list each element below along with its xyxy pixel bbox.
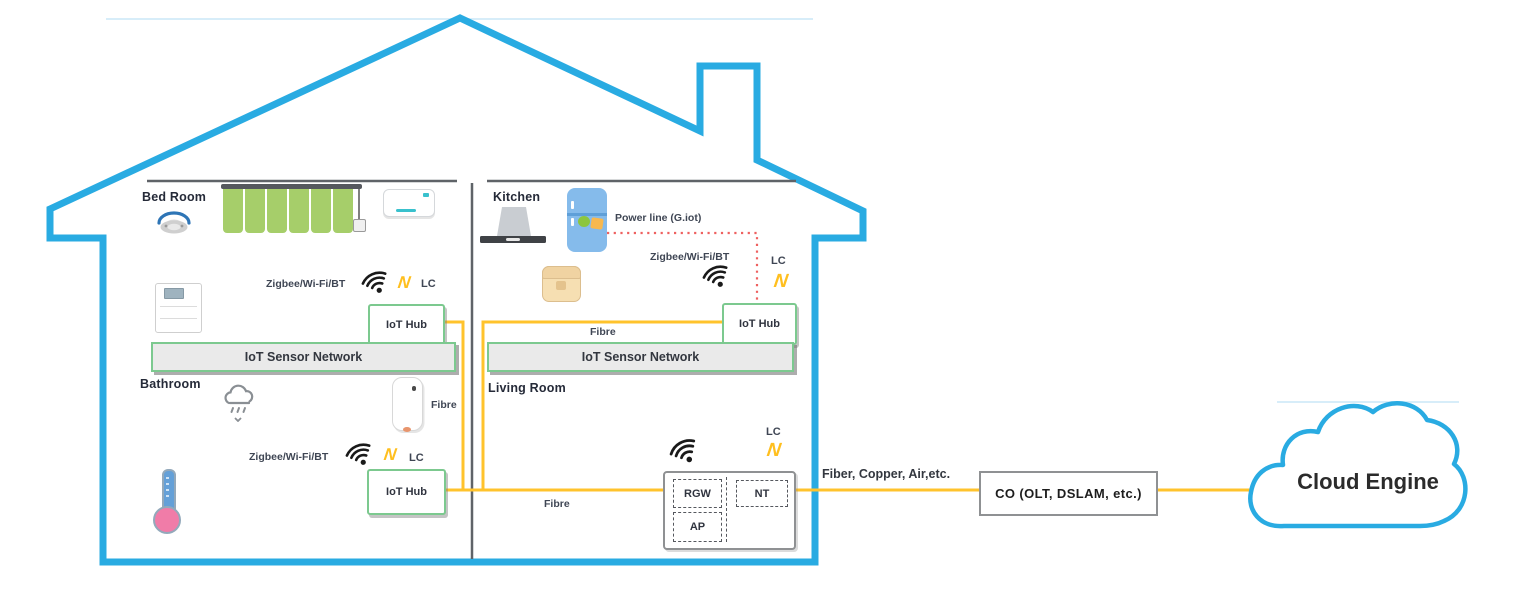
rice-cooker-icon <box>542 266 581 302</box>
bathroom-label: Bathroom <box>140 377 201 391</box>
air-purifier-icon <box>155 283 202 333</box>
central-office-box: CO (OLT, DSLAM, etc.) <box>979 471 1158 516</box>
bedroom-label: Bed Room <box>142 190 206 204</box>
bedroom-protocols-label: Zigbee/Wi-Fi/BT <box>266 278 345 290</box>
fridge-icon <box>567 188 607 252</box>
lightning-icon: N <box>773 272 789 291</box>
powerline-link <box>607 233 757 303</box>
kitchen-sensor-network-bar: IoT Sensor Network <box>487 342 794 372</box>
bathroom-iot-hub: IoT Hub <box>367 469 446 515</box>
lightning-icon: N <box>397 274 412 291</box>
bathroom-fibre-label: Fibre <box>431 399 457 411</box>
nt-module: NT <box>736 480 788 507</box>
kitchen-lc-label: LC <box>771 255 786 267</box>
smoke-detector-icon <box>155 210 193 243</box>
nt-label: NT <box>755 488 770 500</box>
cloud-engine-label: Cloud Engine <box>1288 469 1448 495</box>
living-room-fibre-label: Fibre <box>544 498 570 510</box>
curtain-icon <box>221 184 367 240</box>
powerline-label: Power line (G.iot) <box>615 212 701 224</box>
kitchen-iot-hub-label: IoT Hub <box>739 318 780 330</box>
bathroom-lc-label: LC <box>409 452 424 464</box>
bedroom-sensor-network-bar: IoT Sensor Network <box>151 342 456 372</box>
thermometer-icon <box>152 469 182 531</box>
bedroom-lc-label: LC <box>421 278 436 290</box>
fridge-magnet-note <box>590 217 603 230</box>
ap-label: AP <box>690 521 705 533</box>
rgw-module: RGW <box>673 479 722 508</box>
air-conditioner-icon <box>383 189 435 217</box>
living-room-label: Living Room <box>488 381 566 395</box>
water-heater-icon <box>392 377 423 431</box>
curtain-cord-handle <box>353 219 366 232</box>
bedroom-iot-hub: IoT Hub <box>368 304 445 345</box>
rgw-label: RGW <box>684 488 711 500</box>
living-room-lc-label: LC <box>766 426 781 438</box>
residential-gateway-box: RGW NT AP <box>663 471 796 550</box>
ap-module: AP <box>673 512 722 542</box>
kitchen-label: Kitchen <box>493 190 540 204</box>
range-hood-icon <box>480 207 546 254</box>
access-link-label: Fiber, Copper, Air,etc. <box>822 467 950 481</box>
lightning-icon: N <box>383 446 398 463</box>
bedroom-sensor-network-label: IoT Sensor Network <box>245 350 362 364</box>
curtain-cord <box>358 189 360 220</box>
central-office-label: CO (OLT, DSLAM, etc.) <box>995 486 1142 501</box>
lightning-icon: N <box>766 441 782 460</box>
kitchen-iot-hub: IoT Hub <box>722 303 797 345</box>
kitchen-protocols-label: Zigbee/Wi-Fi/BT <box>650 251 729 263</box>
fridge-magnet-apple <box>578 216 590 227</box>
bedroom-iot-hub-label: IoT Hub <box>386 319 427 331</box>
shower-icon <box>220 384 260 427</box>
smart-home-network-diagram: Bed Room Zigbee/Wi-Fi/BT <box>0 0 1536 613</box>
bathroom-iot-hub-label: IoT Hub <box>386 486 427 498</box>
kitchen-sensor-network-label: IoT Sensor Network <box>582 350 699 364</box>
cloud-icon <box>1250 403 1465 526</box>
kitchen-fibre-label: Fibre <box>590 326 616 338</box>
bathroom-protocols-label: Zigbee/Wi-Fi/BT <box>249 451 328 463</box>
